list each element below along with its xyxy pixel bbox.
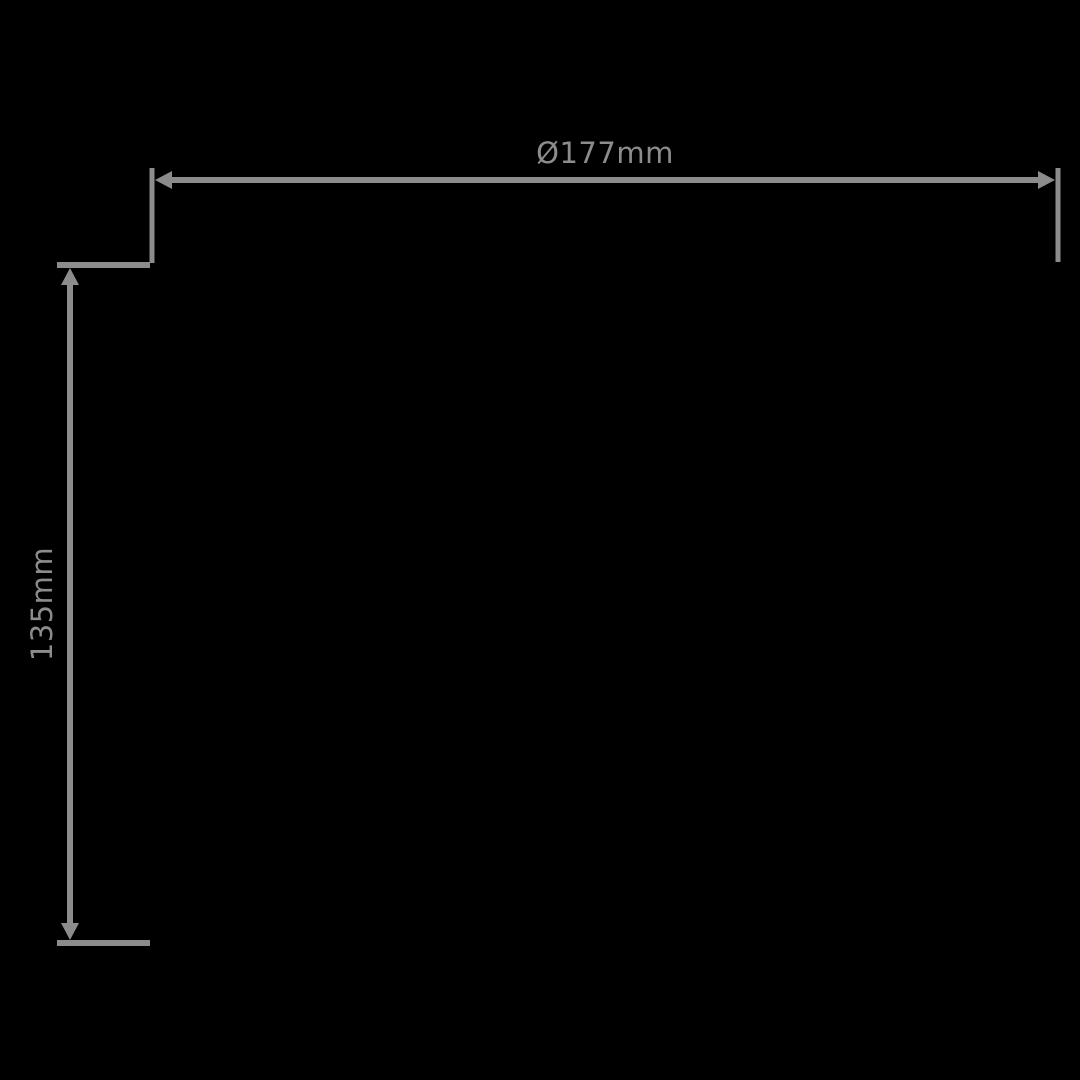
height-arrow-down-icon <box>61 923 79 940</box>
width-arrow-left-icon <box>155 171 172 189</box>
height-dimension-label: 135mm <box>25 547 59 661</box>
dimension-drawing: Ø177mm 135mm <box>0 0 1080 1080</box>
diagram-canvas: Ø177mm 135mm <box>0 0 1080 1080</box>
width-arrow-right-icon <box>1038 171 1055 189</box>
height-arrow-up-icon <box>61 268 79 285</box>
width-dimension-label: Ø177mm <box>536 136 674 170</box>
dimension-labels-group: Ø177mm 135mm <box>25 136 674 661</box>
dimension-arrows-group <box>61 171 1055 940</box>
dimension-lines-group <box>57 168 1058 943</box>
